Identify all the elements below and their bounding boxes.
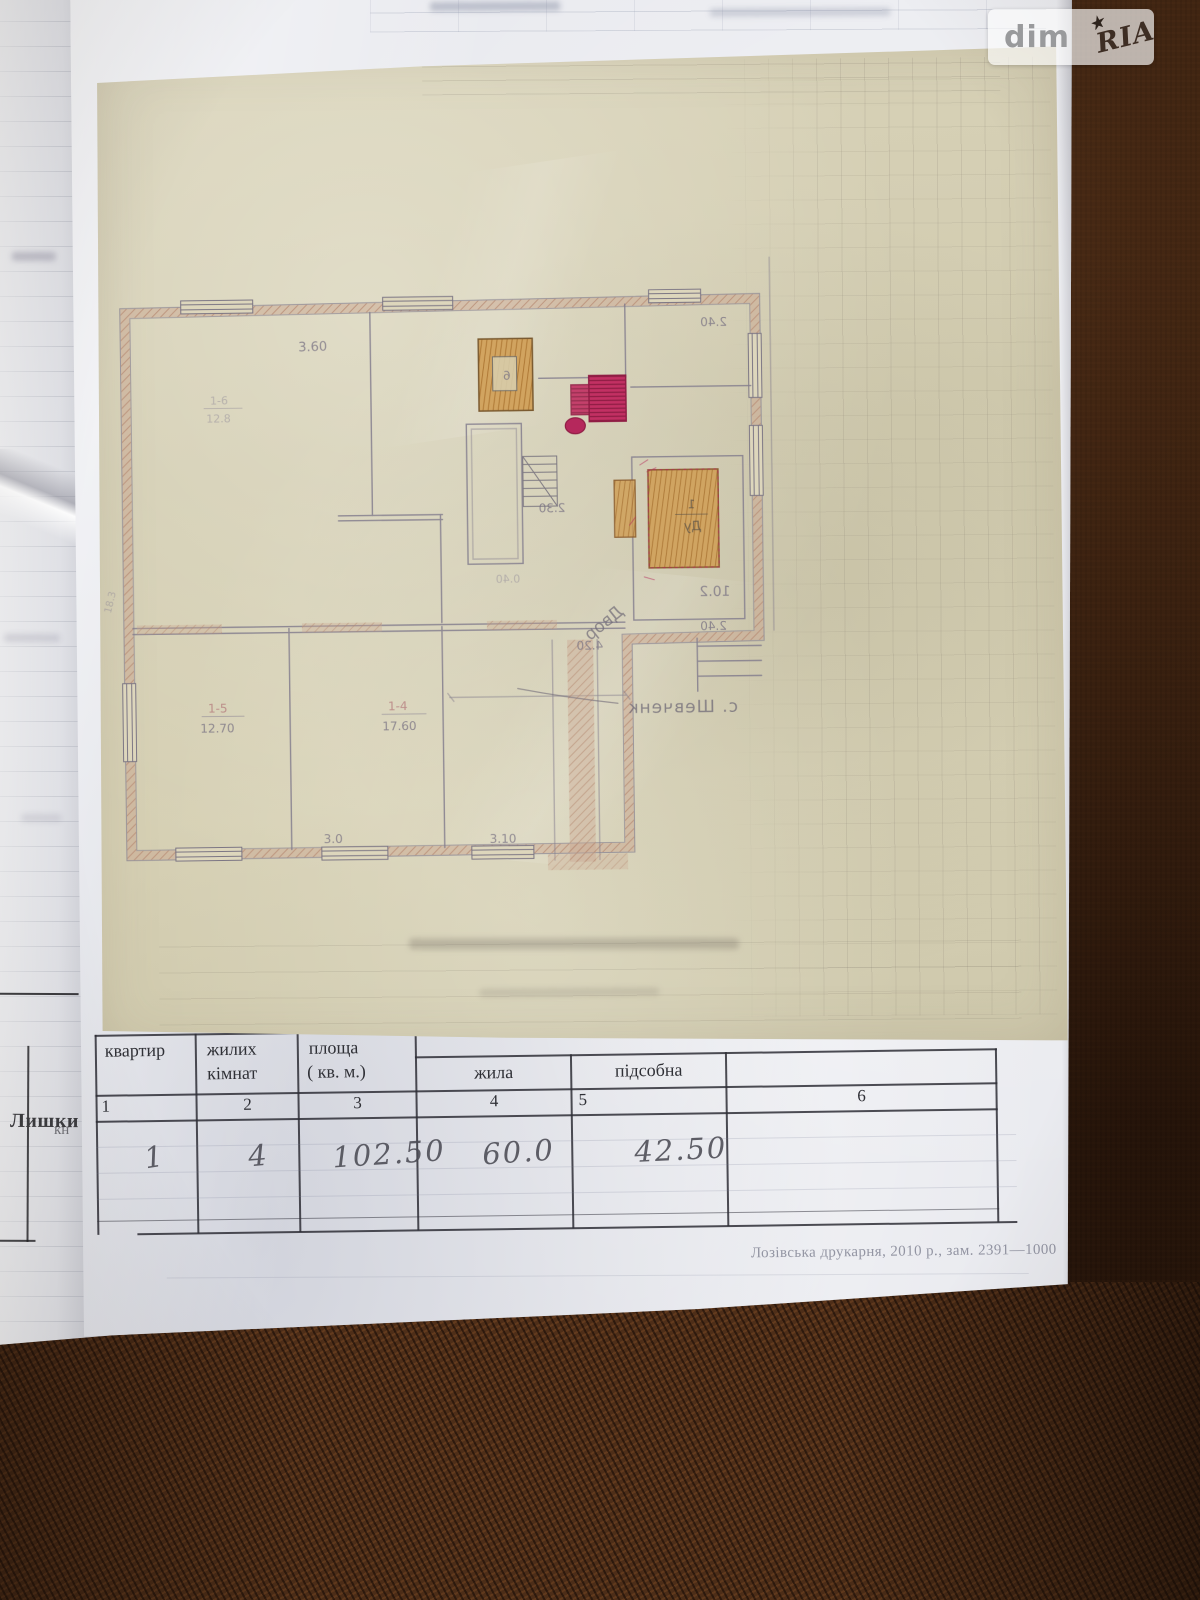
window-symbols (118, 288, 768, 863)
watermark-dim-text: dim (988, 20, 1070, 55)
dim-closet-mirrored: 0.40 (496, 573, 521, 586)
dim-top: 3.60 (298, 340, 327, 356)
faint-handwriting-smudge (21, 814, 61, 822)
table-border (297, 1032, 302, 1232)
room-id: 1-4 (388, 699, 408, 713)
header-apartments: квартир (105, 1039, 166, 1062)
column-number-2: 2 (197, 1094, 297, 1115)
value-living-area: 60.0 (481, 1133, 556, 1172)
table-border (97, 1208, 999, 1222)
faint-handwriting-smudge (4, 634, 60, 642)
column-number-1: 1 (101, 1097, 110, 1117)
stove-b-top-mark: 1 (688, 497, 696, 511)
table-border (195, 1033, 200, 1233)
photo-of-floor-plan-document: Лишки кн (0, 0, 1200, 1600)
value-rooms: 4 (247, 1138, 268, 1173)
stove-orange-small (614, 480, 636, 537)
wing-area-mirrored: 10.2 (699, 584, 730, 600)
faint-ruled-line (167, 1273, 1029, 1279)
header-living: жила (417, 1060, 570, 1084)
table-border-fragment (27, 1046, 30, 1242)
boiler-crimson (589, 375, 627, 421)
illegible-top-text (710, 8, 890, 17)
dim-left-side: 18.3 (103, 590, 119, 614)
watermark-ria-text: ★ RIA (1093, 15, 1158, 59)
crimson-dot (565, 418, 585, 434)
tracing-paper-sheet: 6 1 Ду 1-6 12.8 1-5 (92, 44, 1068, 1052)
illegible-top-text (430, 1, 560, 11)
faint-ruled-line (97, 1186, 1017, 1200)
table-border-fragment (0, 1240, 36, 1242)
column-number-6: 6 (727, 1084, 995, 1108)
header-area-line2: ( кв. м.) (307, 1060, 366, 1083)
floor-plan-drawing: 6 1 Ду 1-6 12.8 1-5 (92, 44, 1068, 1052)
header-rooms-line2: кімнат (207, 1062, 257, 1085)
header-utility: підсобна (572, 1058, 725, 1082)
value-utility-area: 42.50 (633, 1130, 728, 1169)
boiler-crimson-tab (571, 385, 589, 415)
stove-a-mark: 6 (503, 369, 511, 383)
area-summary-table: квартир жилих кімнат площа ( кв. м.) жил… (95, 1022, 1020, 1237)
table-border-fragment (0, 993, 79, 995)
dim-wing-bottom-mirrored: 2.40 (700, 619, 727, 633)
faint-ruled-line (97, 1160, 1017, 1174)
column-number-4: 4 (417, 1090, 570, 1112)
stove-orange-b (648, 469, 719, 568)
room-labels: 1-6 12.8 1-5 12.70 1-4 17.60 (196, 392, 426, 736)
header-area-line1: площа (309, 1036, 359, 1059)
dim-corridor-mirrored: 2.30 (539, 501, 566, 515)
table-border (95, 1035, 100, 1235)
room-id: 1-6 (210, 394, 228, 407)
faint-handwriting-smudge (12, 252, 56, 261)
column-number-3: 3 (299, 1092, 415, 1114)
table-border (415, 1048, 997, 1058)
room-id: 1-5 (208, 701, 228, 715)
room-area: 12.70 (200, 721, 235, 735)
room-area: 12.8 (206, 412, 231, 425)
stove-b-mark: Ду (683, 519, 701, 534)
value-apartments: 1 (142, 1139, 165, 1175)
dim-bottom-mid: 3.0 (324, 832, 343, 846)
faint-ruled-line (96, 1134, 1016, 1148)
dim-wing-top-mirrored: 2.40 (700, 315, 727, 329)
watermark-badge: dim ★ RIA (988, 9, 1154, 65)
flue-box (523, 456, 558, 506)
header-rooms-line1: жилих (207, 1038, 257, 1061)
table-outer-bottom-border (137, 1221, 1017, 1235)
side-page-text-fragment: кн (54, 1122, 69, 1139)
dim-bottom-right: 3.10 (490, 832, 517, 846)
village-name-mirrored: с. Шевченк (627, 697, 738, 718)
column-number-5: 5 (578, 1090, 587, 1110)
table-border (415, 1030, 420, 1230)
print-house-imprint: Лозівська друкарня, 2010 р., зам. 2391—1… (717, 1242, 1057, 1263)
room-area: 17.60 (382, 719, 417, 733)
